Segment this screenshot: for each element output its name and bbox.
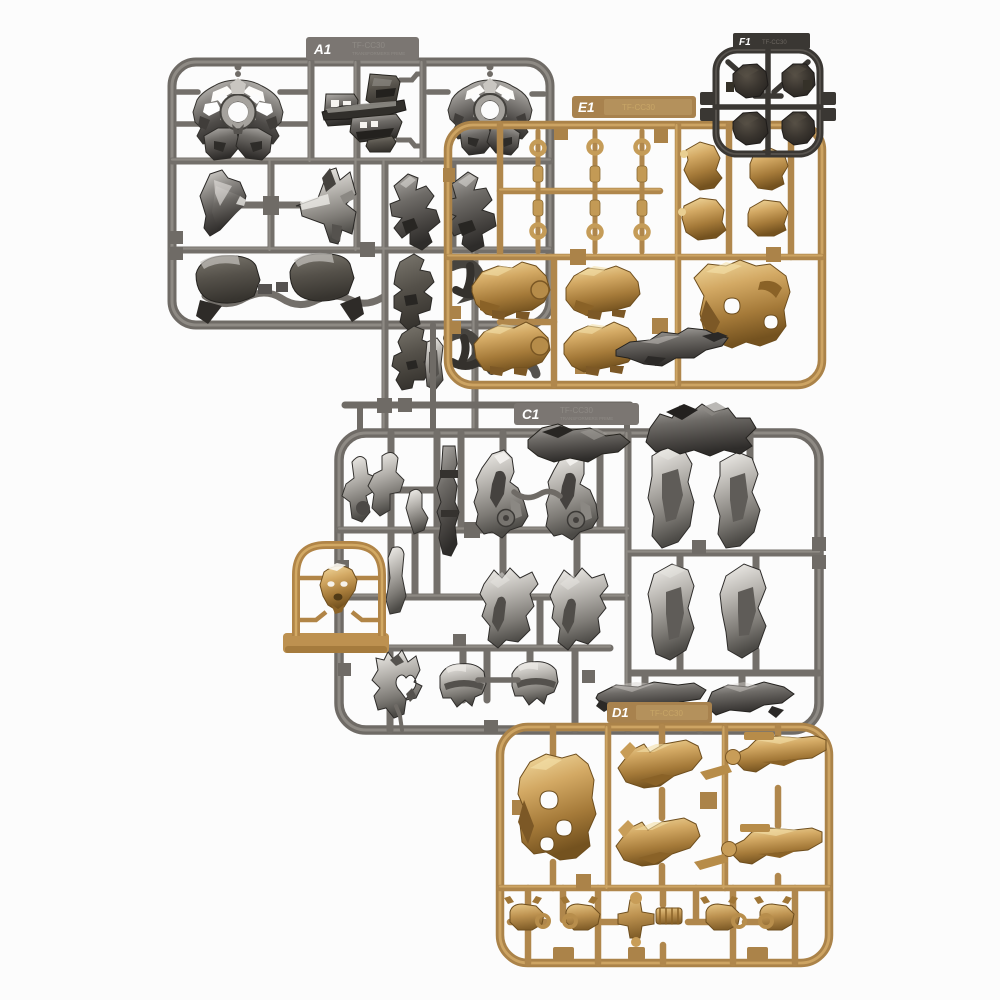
svg-text:A1: A1 (313, 42, 331, 57)
svg-text:TF-CC30: TF-CC30 (352, 41, 385, 50)
svg-text:TRANSFORMERS PRIME: TRANSFORMERS PRIME (352, 51, 405, 56)
svg-text:TF-CC30: TF-CC30 (762, 40, 787, 46)
svg-text:TRANSFORMERS PRIME: TRANSFORMERS PRIME (560, 416, 613, 421)
svg-text:F1: F1 (739, 37, 751, 48)
svg-text:TF-CC30: TF-CC30 (622, 103, 655, 112)
svg-text:D1: D1 (612, 705, 629, 720)
svg-text:TF-CC30: TF-CC30 (560, 406, 593, 415)
svg-text:TF-CC30: TF-CC30 (650, 709, 683, 718)
svg-text:E1: E1 (578, 100, 595, 115)
svg-text:C1: C1 (522, 407, 539, 422)
